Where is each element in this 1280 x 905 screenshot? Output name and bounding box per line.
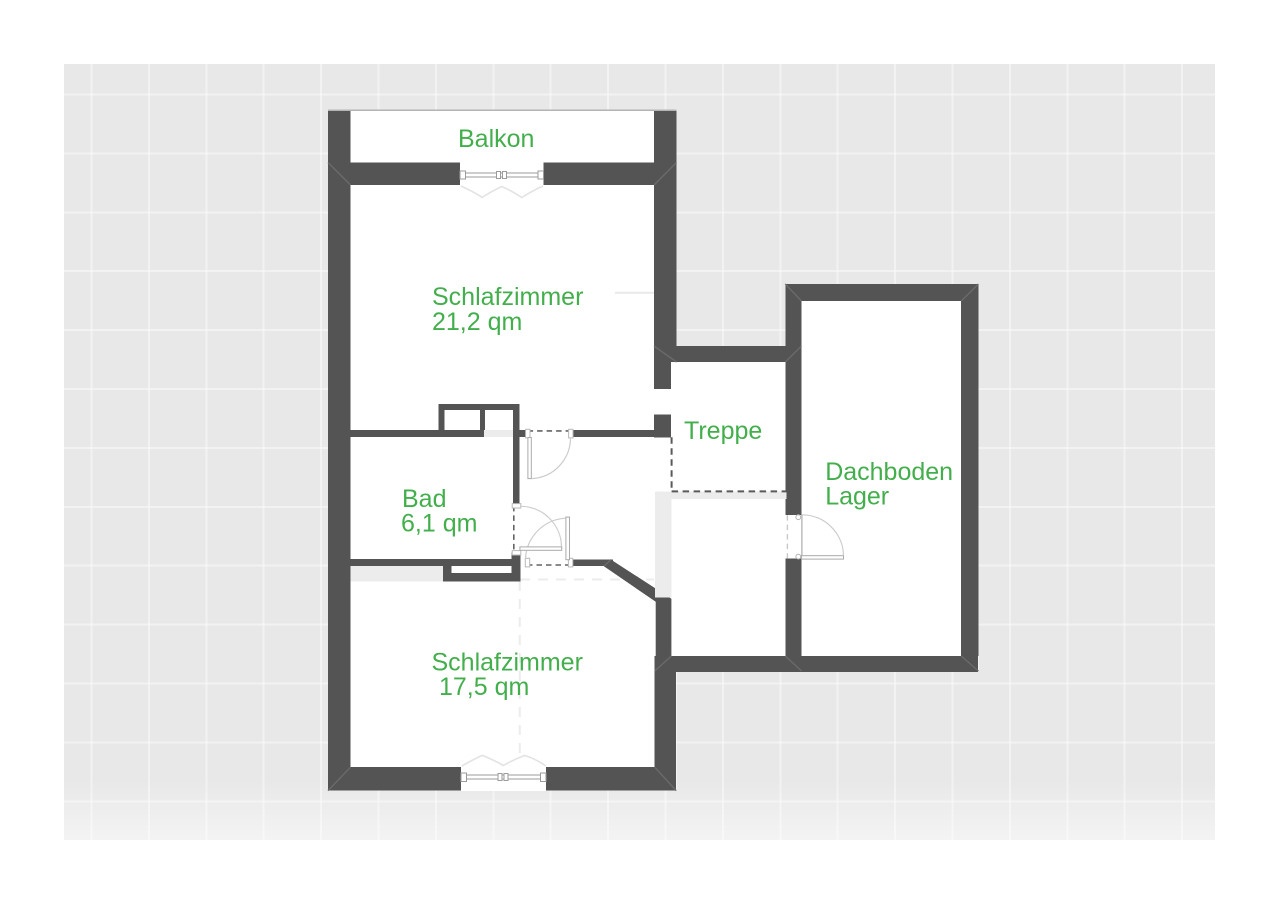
svg-text:17,5 qm: 17,5 qm [439, 673, 529, 701]
svg-text:Treppe: Treppe [684, 417, 762, 445]
svg-text:6,1 qm: 6,1 qm [401, 510, 477, 538]
svg-text:Lager: Lager [825, 482, 889, 510]
svg-text:21,2 qm: 21,2 qm [432, 308, 522, 336]
svg-text:Balkon: Balkon [458, 125, 534, 153]
